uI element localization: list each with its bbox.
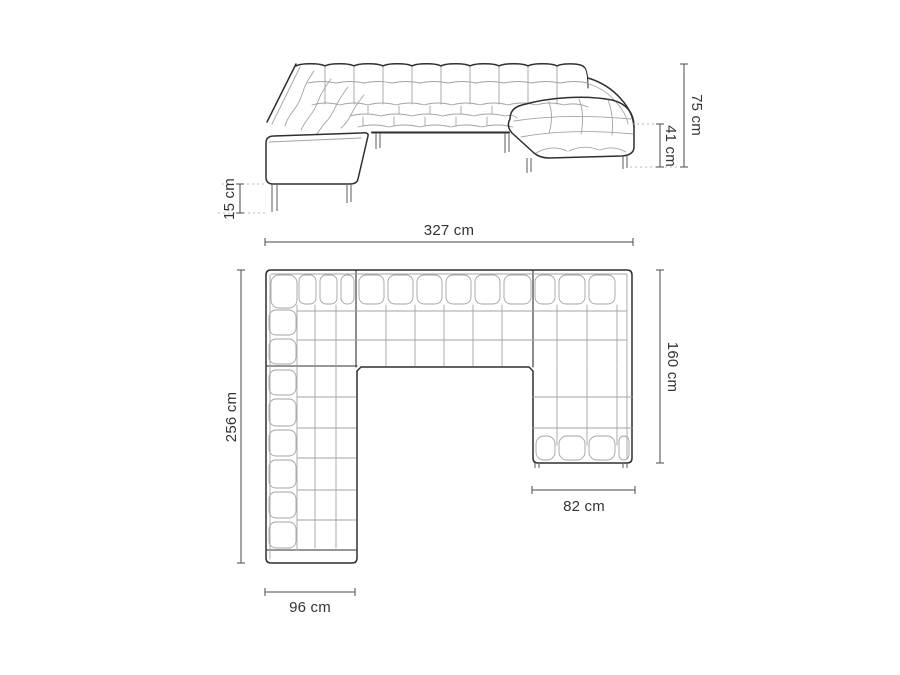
cushion [299, 275, 316, 304]
cushion [269, 339, 296, 364]
left-return-tufts [285, 71, 364, 134]
plan-backrest-cushions [271, 275, 615, 308]
cushion [359, 275, 384, 304]
cushion [619, 436, 629, 460]
cushion [559, 275, 585, 304]
cushion [269, 399, 296, 426]
chaise-tufts [514, 99, 633, 153]
dim-chaise-length-label: 160 cm [664, 342, 681, 392]
dim-total-height-label: 75 cm [688, 94, 705, 136]
sofa-back-right-edge [584, 67, 588, 88]
dim-arm-width-line [265, 588, 355, 596]
plan-chaise-front-cushions [536, 436, 629, 460]
cushion [536, 436, 555, 460]
plan-edge-piping [270, 274, 627, 559]
dotted-reference-lines [218, 124, 688, 213]
dim-chaise-width-label: 82 cm [563, 498, 605, 515]
plan-left-cushions [269, 310, 296, 548]
cushion [589, 275, 615, 304]
seat-cushion-row-1 [350, 114, 517, 118]
seat-back-scallop [312, 103, 588, 107]
sofa-legs [272, 133, 627, 212]
plan-view [266, 270, 632, 563]
cushion [341, 275, 354, 304]
left-return-inner-edge [272, 67, 300, 124]
plan-outline [266, 270, 632, 563]
cushion [475, 275, 500, 304]
cushion [269, 492, 296, 518]
dim-arm-width-label: 96 cm [289, 599, 331, 616]
cushion [388, 275, 413, 304]
cushion [269, 370, 296, 395]
cushion [589, 436, 615, 460]
dim-seat-height-label: 41 cm [662, 125, 679, 167]
cushion [269, 522, 296, 548]
cushion [269, 310, 296, 335]
dim-total-width-label: 327 cm [424, 222, 474, 239]
back-tuft-row [308, 82, 588, 84]
cushion [504, 275, 531, 304]
diagram-canvas: 75 cm 41 cm 15 cm 327 cm 256 cm 160 cm 8… [0, 0, 900, 675]
cushion [417, 275, 442, 304]
left-armrest-piping [269, 138, 361, 142]
chaise-outline [508, 97, 634, 158]
left-armrest-panel [266, 133, 368, 184]
plan-section-joints [266, 270, 533, 550]
dim-leg-height-label: 15 cm [221, 178, 238, 220]
seat-cushion-row-2 [358, 125, 513, 127]
cushion [269, 460, 296, 488]
sofa-back-top-edge [296, 64, 584, 67]
dim-total-depth-label: 256 cm [223, 392, 240, 442]
cushion [446, 275, 471, 304]
back-tuft-verticals [325, 67, 557, 104]
cushion [535, 275, 555, 304]
dim-chaise-length-line [656, 270, 664, 463]
dim-chaise-width-line [532, 486, 635, 494]
cushion [320, 275, 337, 304]
sofa-dimension-diagram: 75 cm 41 cm 15 cm 327 cm 256 cm 160 cm 8… [0, 0, 900, 675]
cushion [559, 436, 585, 460]
cushion [269, 430, 296, 456]
front-view [266, 64, 634, 212]
dim-total-height-line [680, 64, 688, 167]
dim-total-width-line [265, 238, 633, 246]
cushion [271, 275, 297, 308]
